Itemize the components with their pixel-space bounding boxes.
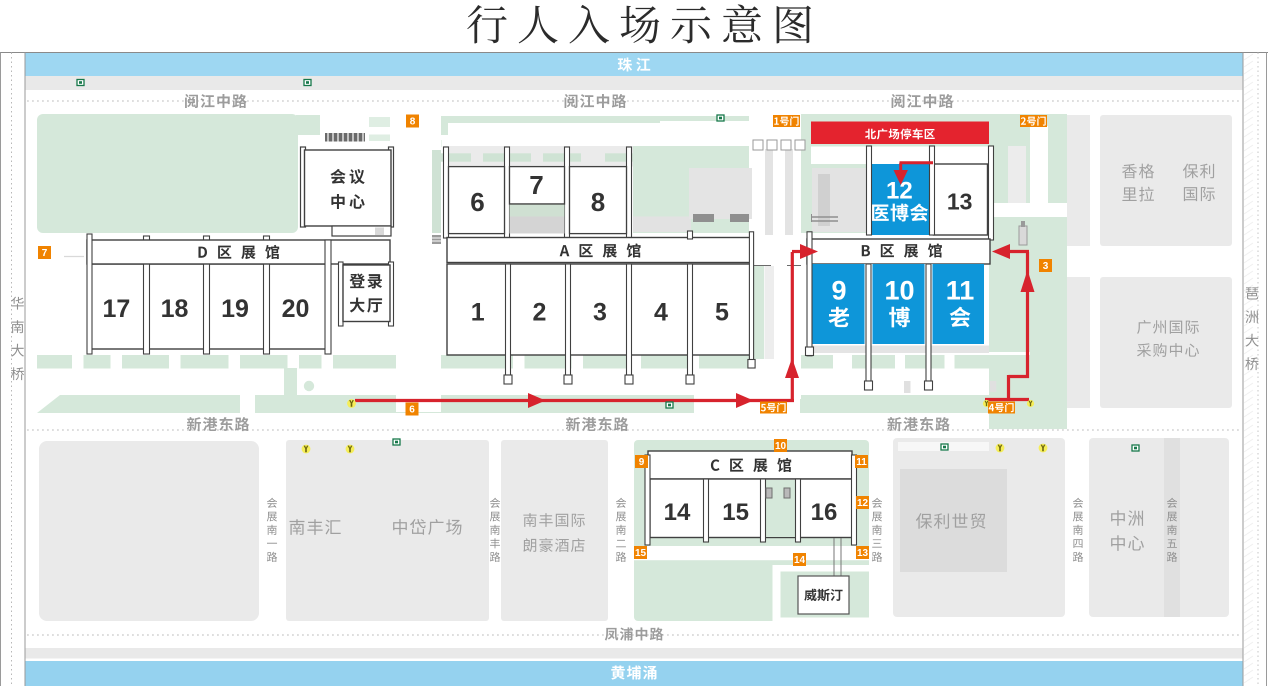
svg-text:13: 13 — [947, 189, 973, 215]
svg-text:13: 13 — [857, 548, 869, 559]
svg-text:11: 11 — [946, 276, 975, 306]
svg-text:3: 3 — [593, 298, 607, 326]
svg-text:8: 8 — [591, 187, 605, 217]
svg-text:10: 10 — [775, 441, 787, 452]
svg-text:20: 20 — [282, 295, 310, 323]
svg-text:7: 7 — [42, 248, 48, 259]
svg-text:14: 14 — [794, 555, 806, 566]
svg-text:10: 10 — [884, 276, 914, 306]
svg-text:18: 18 — [161, 295, 189, 323]
svg-text:19: 19 — [221, 295, 249, 323]
svg-text:15: 15 — [722, 499, 749, 526]
svg-text:3: 3 — [1043, 261, 1049, 272]
svg-text:7: 7 — [529, 170, 543, 200]
svg-text:14: 14 — [664, 499, 691, 526]
svg-text:12: 12 — [857, 498, 869, 509]
svg-text:5: 5 — [715, 298, 729, 326]
svg-text:15: 15 — [635, 548, 647, 559]
svg-text:16: 16 — [811, 499, 838, 526]
svg-text:17: 17 — [102, 295, 130, 323]
svg-text:9: 9 — [831, 276, 846, 306]
svg-text:4: 4 — [654, 298, 668, 326]
svg-text:9: 9 — [639, 457, 645, 468]
svg-text:6: 6 — [470, 187, 484, 217]
svg-text:6: 6 — [409, 405, 415, 416]
svg-text:2: 2 — [533, 298, 547, 326]
svg-text:11: 11 — [856, 457, 867, 468]
svg-text:8: 8 — [410, 117, 416, 128]
svg-text:1: 1 — [471, 298, 485, 326]
